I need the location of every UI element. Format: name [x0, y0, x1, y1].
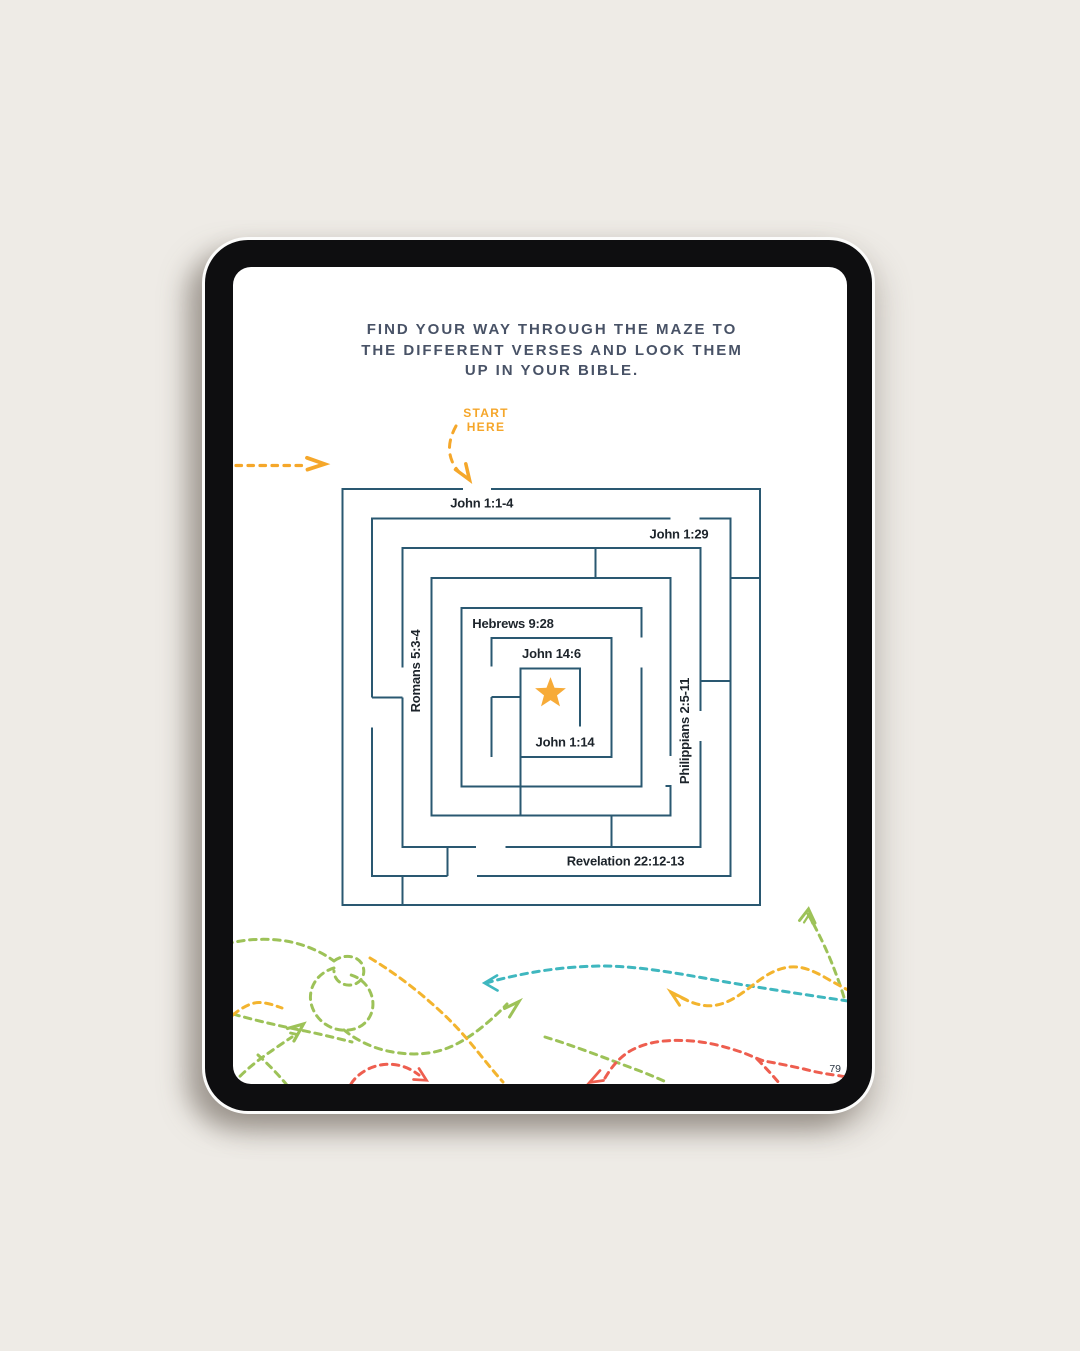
svg-text:Hebrews 9:28: Hebrews 9:28	[472, 616, 553, 631]
svg-text:John 1:29: John 1:29	[650, 527, 709, 542]
svg-text:Philippians 2:5-11: Philippians 2:5-11	[677, 678, 692, 784]
svg-text:Romans 5:3-4: Romans 5:3-4	[408, 629, 423, 713]
svg-text:John 14:6: John 14:6	[522, 646, 581, 661]
svg-text:Revelation 22:12-13: Revelation 22:12-13	[567, 854, 685, 869]
svg-text:John 1:1-4: John 1:1-4	[450, 496, 514, 511]
svg-text:John 1:14: John 1:14	[536, 735, 596, 750]
